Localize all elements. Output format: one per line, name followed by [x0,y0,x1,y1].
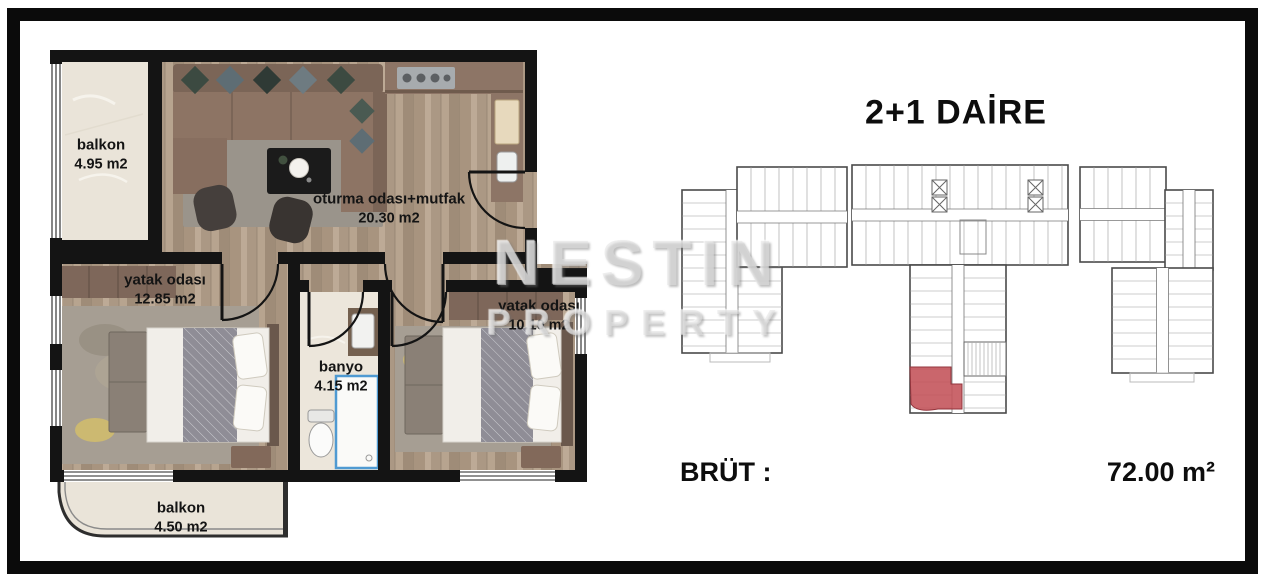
unit-type-title: 2+1 DAİRE [865,94,1047,133]
brut-value: 72.00 m² [1107,457,1215,488]
label-balkon-top: balkon4.95 m2 [74,137,127,174]
bed2-pillow [527,385,561,432]
kitchen-sink [497,152,517,182]
bed2-pillow [526,332,562,380]
bedroom2-nightstand [521,446,561,468]
label-bedroom-2: yatak odası10.10 m2 [498,298,580,335]
floor-plan-sheet: balkon4.95 m2 oturma odası+mutfak20.30 m… [0,0,1280,582]
building-key-plan [650,160,1270,450]
stairs [964,342,1006,376]
label-bathroom: banyo4.15 m2 [314,359,367,396]
bed2-headboard [561,322,573,446]
toilet-tank [308,410,334,422]
label-bedroom-1: yatak odası12.85 m2 [124,272,206,309]
bedroom1-nightstand [231,446,271,468]
bed1-pillow [233,385,267,432]
brut-label: BRÜT : [680,457,771,488]
kitchen-cabinet [495,100,519,144]
label-balkon-bottom: balkon4.50 m2 [154,500,207,537]
sofa-seat [173,92,351,140]
label-living-kitchen: oturma odası+mutfak20.30 m2 [313,191,465,228]
toilet [309,423,333,457]
bed1-pillow [232,332,268,380]
